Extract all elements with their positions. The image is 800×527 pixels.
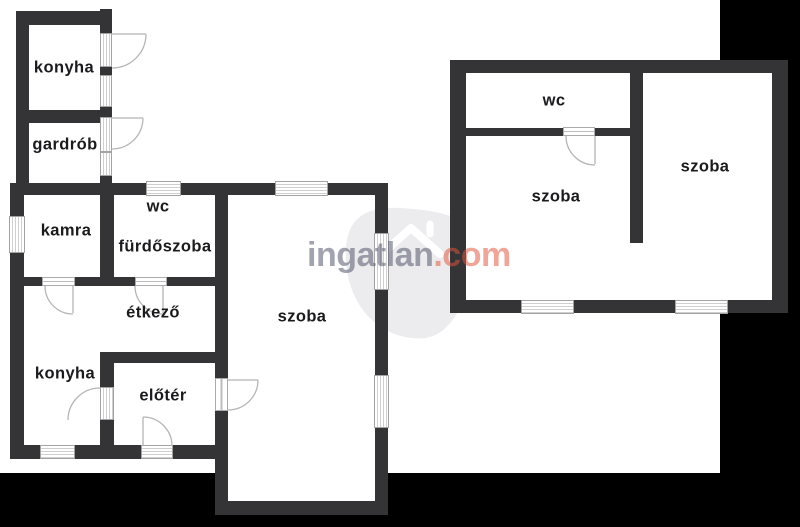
wall-segment xyxy=(630,73,643,243)
wall-segment xyxy=(16,11,112,25)
room-label-szoba-main: szoba xyxy=(278,308,327,327)
wall-segment xyxy=(466,128,563,136)
window xyxy=(100,75,112,107)
room-label-konyha-top: konyha xyxy=(34,59,94,78)
entrance-door-window xyxy=(141,445,173,459)
right-building-interior xyxy=(466,73,773,300)
room-label-kamra: kamra xyxy=(41,222,92,241)
wall-segment xyxy=(100,107,112,117)
wall-segment xyxy=(100,352,228,363)
floor-plan-canvas: konyha gardrób kamra wc fürdőszoba étkez… xyxy=(0,0,800,527)
wall-segment xyxy=(772,60,788,313)
szoba-main-interior-overflow xyxy=(228,450,375,502)
door-opening xyxy=(215,378,228,411)
window xyxy=(9,216,25,253)
room-label-szoba-right-left: szoba xyxy=(532,188,581,207)
wall-segment xyxy=(595,128,633,136)
wall-segment xyxy=(450,300,788,313)
room-label-szoba-right-right: szoba xyxy=(681,158,730,177)
wall-segment xyxy=(215,183,228,515)
window xyxy=(100,33,112,67)
window xyxy=(146,181,181,196)
room-label-furdoszoba: fürdőszoba xyxy=(119,238,212,257)
wall-segment xyxy=(16,110,112,123)
window xyxy=(100,152,112,176)
watermark-brand-accent: .com xyxy=(433,236,510,274)
door-opening xyxy=(100,387,114,420)
room-label-wc-left: wc xyxy=(147,198,170,217)
room-label-gardrob: gardrób xyxy=(32,136,97,155)
wall-segment xyxy=(100,9,112,33)
wall-segment xyxy=(450,60,466,313)
room-label-wc-right: wc xyxy=(543,92,566,111)
window xyxy=(521,300,574,314)
door-opening xyxy=(42,277,75,286)
watermark-brand-gray: ingatlan xyxy=(307,236,433,274)
wall-segment xyxy=(100,67,112,75)
window xyxy=(100,117,112,152)
door-opening xyxy=(563,127,595,136)
wall-segment xyxy=(215,501,388,515)
room-label-konyha-bottom: konyha xyxy=(35,365,95,384)
room-label-eloter: előtér xyxy=(139,387,186,406)
wall-segment xyxy=(16,11,29,191)
wall-segment xyxy=(100,195,114,286)
window xyxy=(374,375,389,428)
wall-segment xyxy=(10,183,388,195)
wall-segment xyxy=(450,60,788,73)
window xyxy=(275,181,328,196)
window xyxy=(675,300,728,314)
room-label-etkezo: étkező xyxy=(126,304,180,323)
window xyxy=(40,445,75,459)
door-opening xyxy=(135,277,167,286)
watermark-text: ingatlan.com xyxy=(307,236,511,275)
